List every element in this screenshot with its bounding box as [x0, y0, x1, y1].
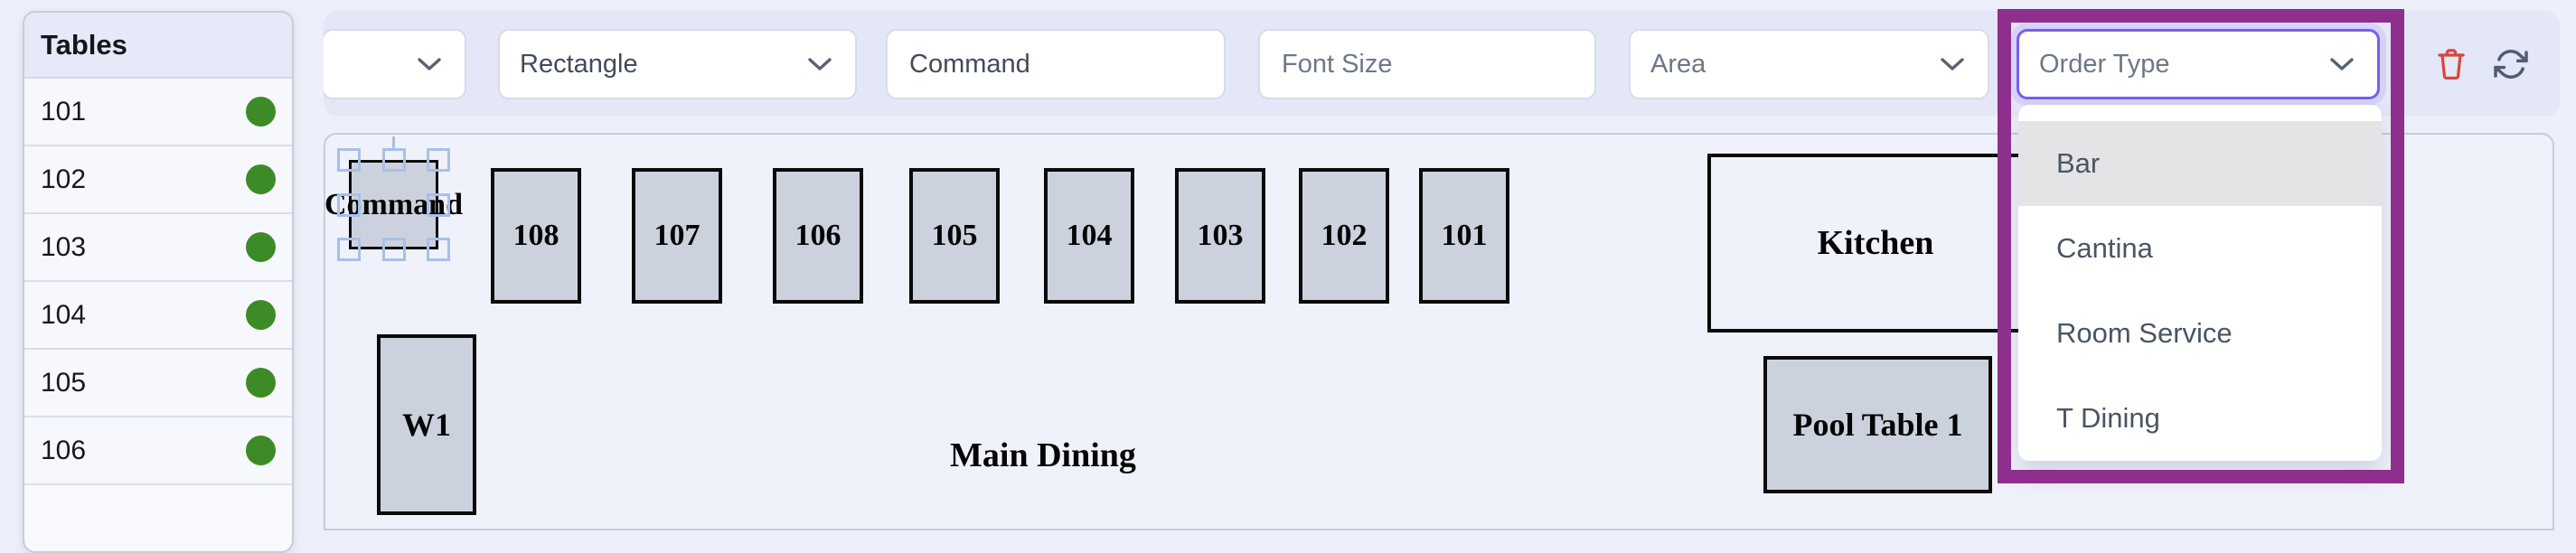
sidebar-title: Tables — [24, 13, 292, 79]
table-number: 106 — [41, 436, 86, 466]
tables-sidebar: Tables 101102103104105106 — [23, 11, 294, 553]
selection-handle[interactable] — [427, 193, 450, 217]
status-dot — [246, 164, 276, 194]
refresh-button[interactable] — [2491, 44, 2531, 84]
shape-command[interactable]: Command — [349, 160, 438, 249]
chevron-down-icon — [2328, 55, 2355, 73]
status-dot — [246, 300, 276, 330]
label-main-dining[interactable]: Main Dining — [944, 433, 1142, 478]
table-list-item-101[interactable]: 101 — [24, 79, 292, 146]
tables-list: 101102103104105106 — [24, 79, 292, 485]
toolbar: Rectangle Area Order Type — [324, 11, 2560, 117]
selection-handle[interactable] — [337, 193, 361, 217]
selection-handle[interactable] — [427, 238, 450, 261]
table-107[interactable]: 107 — [632, 168, 722, 304]
order-type-menu: BarCantinaRoom ServiceT Dining — [2018, 105, 2382, 461]
shape-type-select-value: Rectangle — [520, 50, 638, 80]
order-type-option-room-service[interactable]: Room Service — [2018, 291, 2382, 376]
floor-plan-editor: Tables 101102103104105106 Rectangle Area… — [0, 0, 2576, 511]
table-103[interactable]: 103 — [1175, 168, 1265, 304]
table-number: 103 — [41, 232, 86, 263]
chevron-down-icon — [1939, 55, 1966, 73]
selection-handle[interactable] — [382, 148, 406, 172]
table-106[interactable]: 106 — [773, 168, 863, 304]
shape-pool-table-1[interactable]: Pool Table 1 — [1763, 356, 1992, 493]
table-list-item-105[interactable]: 105 — [24, 350, 292, 417]
command-input[interactable] — [886, 29, 1226, 99]
table-number: 101 — [41, 97, 86, 127]
delete-button[interactable] — [2431, 44, 2471, 84]
table-list-item-104[interactable]: 104 — [24, 282, 292, 350]
table-number: 105 — [41, 368, 86, 398]
chevron-down-icon — [806, 55, 833, 73]
status-dot — [246, 436, 276, 465]
table-105[interactable]: 105 — [909, 168, 1000, 304]
table-w1[interactable]: W1 — [377, 334, 476, 515]
trash-icon — [2434, 46, 2468, 82]
table-108[interactable]: 108 — [491, 168, 581, 304]
status-dot — [246, 368, 276, 398]
table-102[interactable]: 102 — [1299, 168, 1389, 304]
table-104[interactable]: 104 — [1044, 168, 1134, 304]
refresh-icon — [2493, 46, 2529, 82]
selection-handle[interactable] — [382, 238, 406, 261]
area-select-placeholder: Area — [1650, 50, 1706, 80]
table-list-item-106[interactable]: 106 — [24, 417, 292, 485]
selection-handle[interactable] — [337, 238, 361, 261]
shape-select[interactable] — [324, 29, 466, 99]
order-type-option-cantina[interactable]: Cantina — [2018, 206, 2382, 291]
selection-handle[interactable] — [427, 148, 450, 172]
selection-handle[interactable] — [337, 148, 361, 172]
table-101[interactable]: 101 — [1419, 168, 1509, 304]
table-number: 104 — [41, 300, 86, 331]
order-type-option-bar[interactable]: Bar — [2018, 121, 2382, 206]
table-number: 102 — [41, 164, 86, 195]
table-list-item-102[interactable]: 102 — [24, 146, 292, 214]
order-type-option-t-dining[interactable]: T Dining — [2018, 376, 2382, 461]
chevron-down-icon — [416, 55, 443, 73]
area-select[interactable]: Area — [1629, 29, 1989, 99]
font-size-input[interactable] — [1258, 29, 1596, 99]
shape-type-select[interactable]: Rectangle — [498, 29, 857, 99]
area-kitchen[interactable]: Kitchen — [1707, 154, 2044, 333]
order-type-select-placeholder: Order Type — [2039, 50, 2170, 80]
status-dot — [246, 232, 276, 262]
status-dot — [246, 97, 276, 127]
table-list-item-103[interactable]: 103 — [24, 214, 292, 282]
order-type-select[interactable]: Order Type — [2017, 29, 2380, 99]
rotation-handle[interactable] — [392, 136, 395, 149]
